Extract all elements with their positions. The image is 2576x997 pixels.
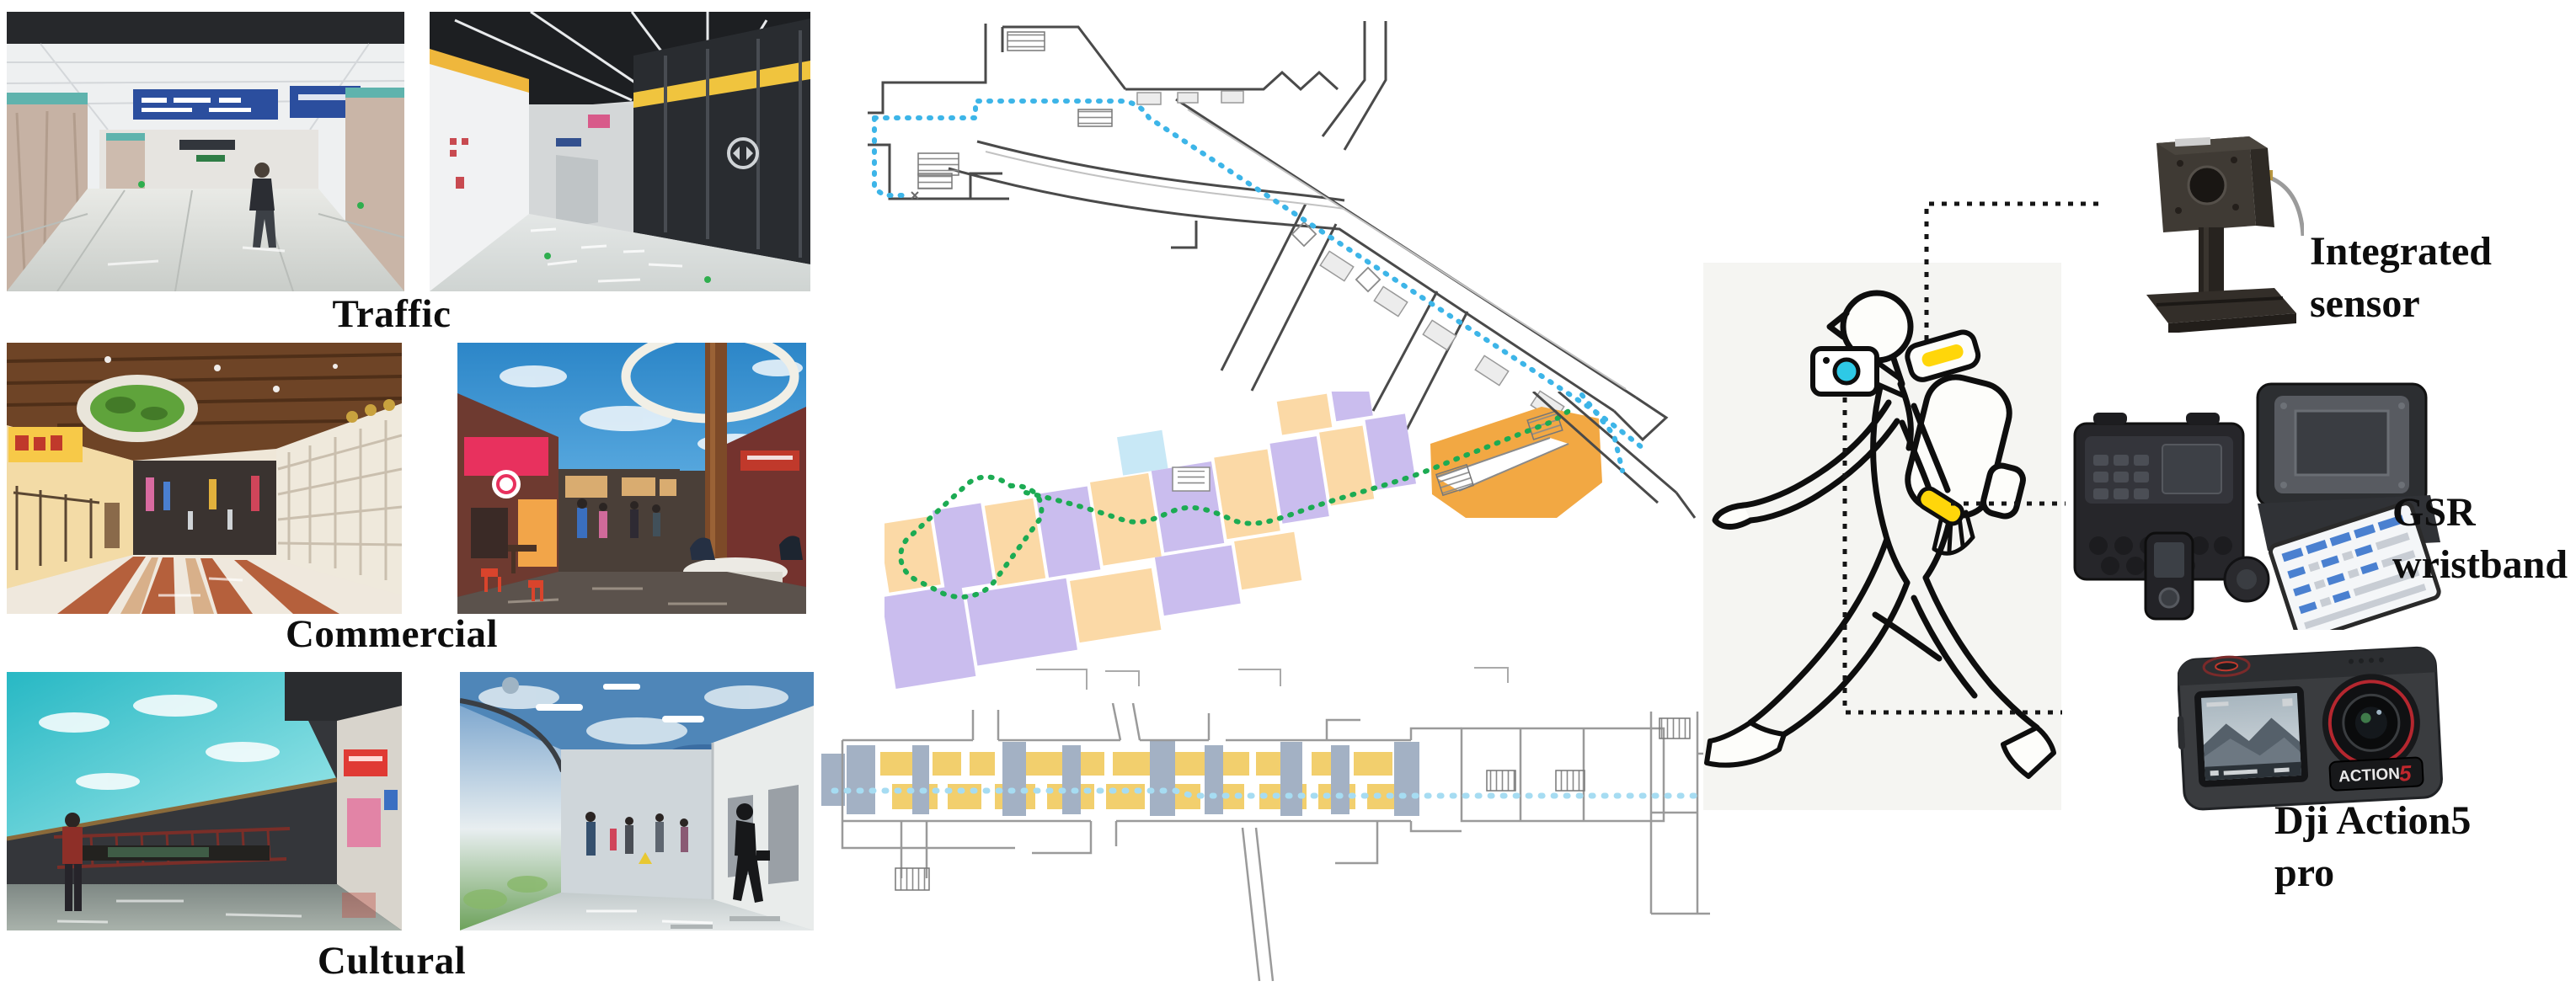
- connector-integrated-sensor: [1927, 204, 2101, 340]
- equipment-integrated-sensor: [2123, 126, 2304, 333]
- figure-canvas: Traffic: [0, 0, 2576, 997]
- label-dji-action5-pro: Dji Action5 pro: [2274, 795, 2471, 899]
- camera-badge: ACTION 5: [2329, 757, 2424, 791]
- svg-text:ACTION: ACTION: [2338, 765, 2401, 786]
- equipment-action-camera: ACTION 5: [2178, 638, 2451, 815]
- label-gsr-wristband: GSR wristband: [2392, 487, 2568, 591]
- connector-action-camera: [1845, 397, 2062, 712]
- svg-text:5: 5: [2398, 760, 2413, 786]
- sensor-aperture: [2189, 167, 2226, 204]
- handheld-unit: [2146, 533, 2193, 619]
- label-integrated-sensor: Integrated sensor: [2310, 226, 2492, 330]
- keypad: [2093, 455, 2149, 499]
